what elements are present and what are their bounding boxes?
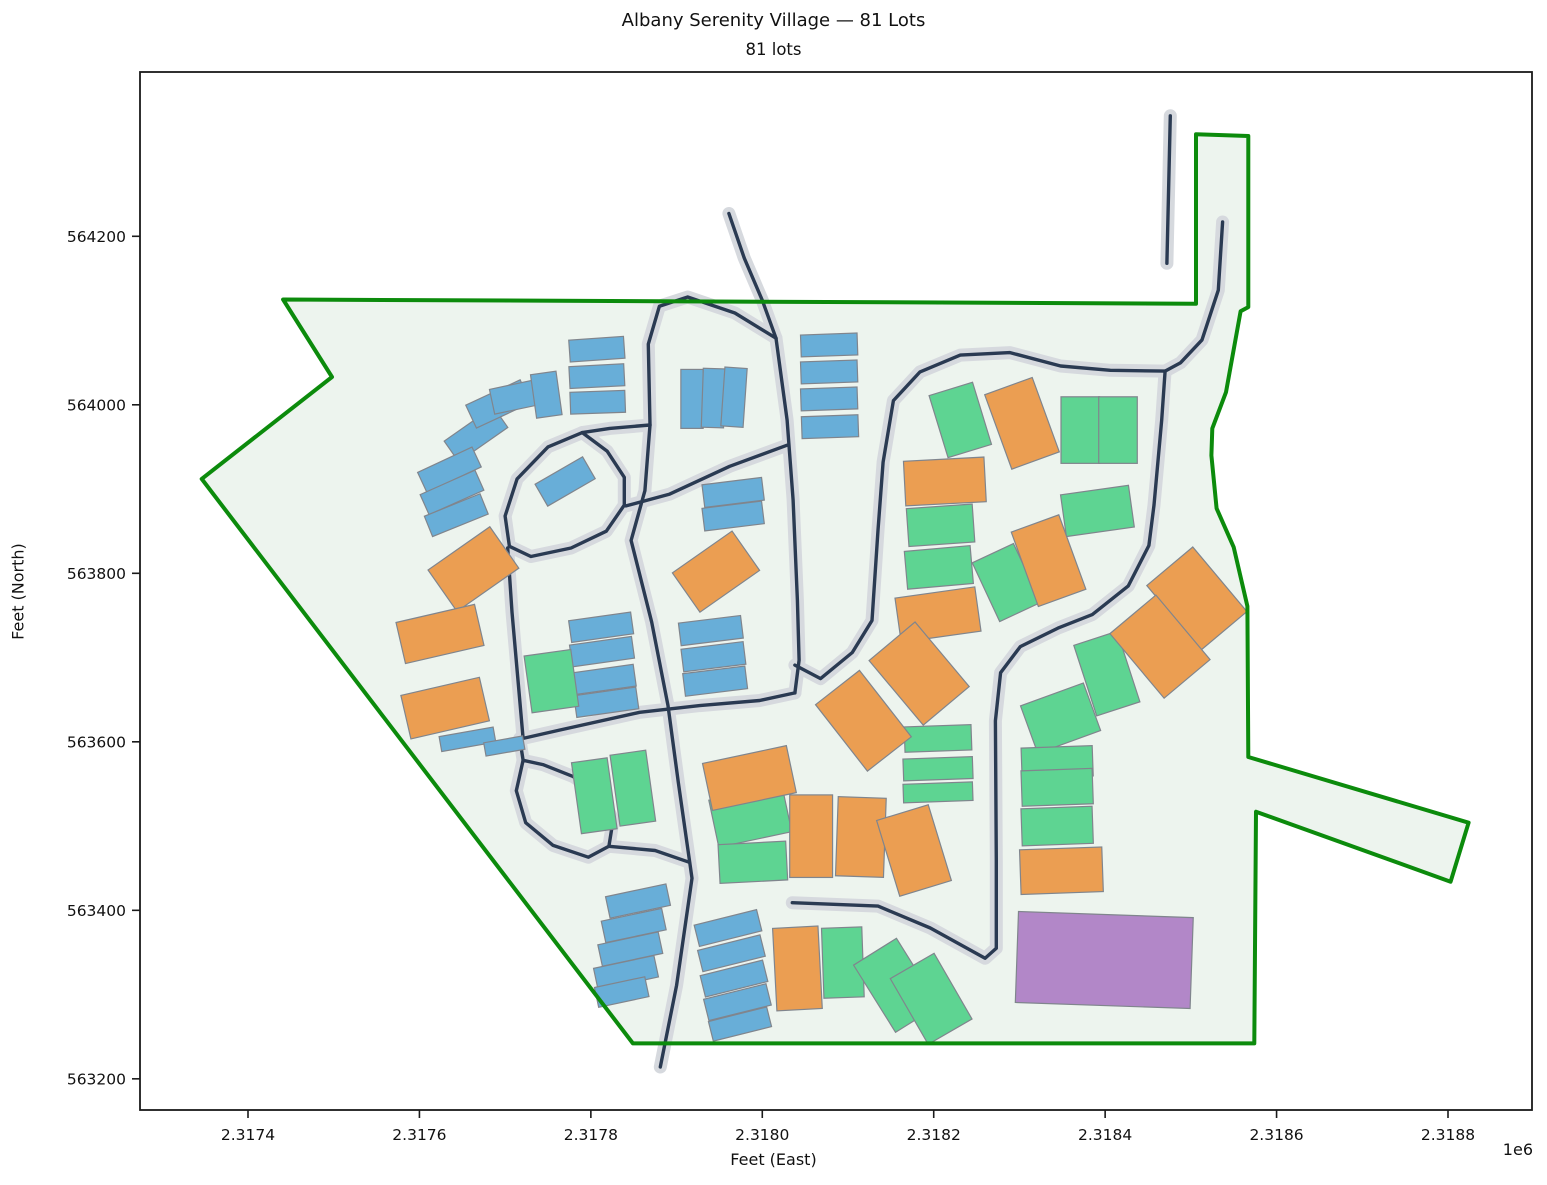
figure-canvas: 2.31742.31762.31782.31802.31822.31842.31… bbox=[0, 0, 1547, 1185]
x-tick-label: 2.3178 bbox=[564, 1126, 618, 1144]
lot-green-44 bbox=[1061, 397, 1100, 464]
y-tick-label: 563600 bbox=[67, 733, 126, 751]
x-tick-label: 2.3180 bbox=[735, 1126, 789, 1144]
lot-orange-77 bbox=[835, 797, 886, 878]
y-tick-label: 563200 bbox=[67, 1070, 126, 1088]
lot-green-54 bbox=[1021, 806, 1093, 846]
lot-green-45 bbox=[1099, 397, 1138, 464]
lot-orange-80 bbox=[1020, 847, 1104, 894]
y-tick-label: 563400 bbox=[67, 902, 126, 920]
y-tick-label: 563800 bbox=[67, 565, 126, 583]
x-tick-label: 2.3184 bbox=[1078, 1126, 1132, 1144]
lot-blue-4 bbox=[531, 371, 563, 418]
lot-orange-79 bbox=[773, 926, 823, 1011]
x-axis-label: Feet (East) bbox=[0, 1150, 1547, 1169]
lot-green-61 bbox=[903, 757, 973, 781]
x-tick-label: 2.3188 bbox=[1421, 1126, 1475, 1144]
lot-blue-18 bbox=[800, 360, 857, 384]
x-tick-label: 2.3176 bbox=[392, 1126, 446, 1144]
lot-blue-20 bbox=[801, 415, 858, 439]
x-tick-label: 2.3186 bbox=[1249, 1126, 1303, 1144]
lot-blue-7 bbox=[570, 390, 626, 414]
lot-blue-6 bbox=[569, 364, 625, 389]
lot-green-53 bbox=[1021, 768, 1093, 806]
lot-green-56 bbox=[718, 841, 788, 883]
lot-green-47 bbox=[904, 546, 973, 590]
lot-blue-19 bbox=[800, 387, 857, 411]
lot-green-62 bbox=[903, 782, 973, 803]
chart-title: Albany Serenity Village — 81 Lots bbox=[0, 8, 1547, 34]
x-tick-label: 2.3174 bbox=[221, 1126, 275, 1144]
lot-orange-76 bbox=[790, 795, 833, 878]
lot-orange-67 bbox=[903, 457, 986, 506]
lot-green-40 bbox=[524, 650, 579, 713]
y-tick-label: 564000 bbox=[67, 396, 126, 414]
lot-blue-14 bbox=[681, 369, 703, 428]
y-axis-label: Feet (North) bbox=[9, 312, 28, 872]
axis-offset-label: 1e6 bbox=[1503, 1140, 1533, 1159]
chart-subtitle: 81 lots bbox=[0, 40, 1547, 59]
lot-purple-81 bbox=[1015, 912, 1193, 1009]
lot-blue-17 bbox=[800, 333, 857, 357]
lot-blue-16 bbox=[721, 367, 747, 427]
lot-blue-5 bbox=[569, 336, 625, 362]
site-plan-svg: 2.31742.31762.31782.31802.31822.31842.31… bbox=[0, 0, 1547, 1185]
y-tick-label: 564200 bbox=[67, 228, 126, 246]
lot-green-48 bbox=[1061, 485, 1135, 536]
lot-green-46 bbox=[906, 504, 974, 546]
lot-green-60 bbox=[904, 725, 972, 753]
x-tick-label: 2.3182 bbox=[907, 1126, 961, 1144]
